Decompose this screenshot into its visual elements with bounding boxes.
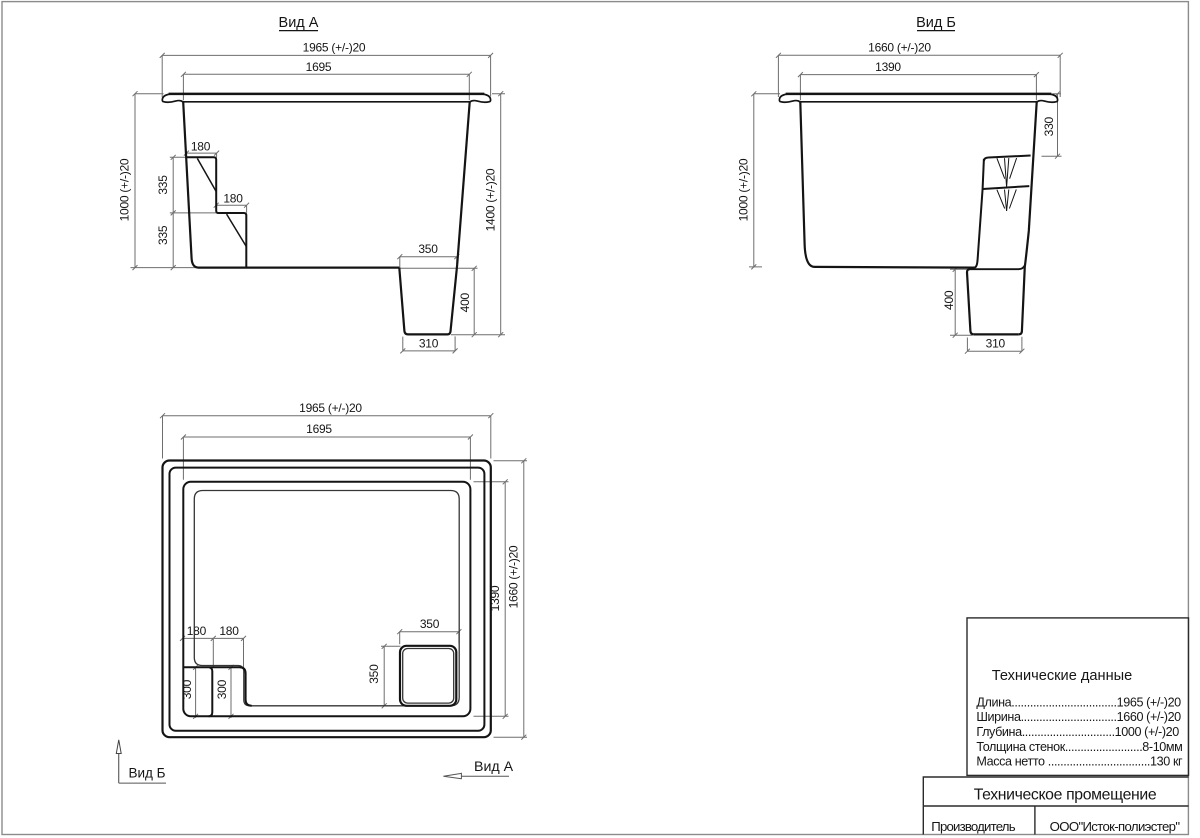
svg-text:Техническое промещение: Техническое промещение bbox=[974, 787, 1157, 804]
svg-text:Вид А: Вид А bbox=[279, 15, 319, 31]
svg-text:400: 400 bbox=[458, 292, 472, 312]
svg-text:1965 (+/-)20: 1965 (+/-)20 bbox=[303, 41, 366, 55]
svg-text:Вид Б: Вид Б bbox=[129, 766, 166, 781]
svg-text:180: 180 bbox=[187, 624, 207, 638]
svg-text:300: 300 bbox=[180, 679, 194, 699]
svg-text:Длина.........................: Длина..................................1… bbox=[976, 695, 1181, 709]
svg-text:180: 180 bbox=[219, 624, 239, 638]
svg-text:1390: 1390 bbox=[875, 60, 901, 74]
svg-text:400: 400 bbox=[942, 290, 956, 310]
svg-text:ООО"Исток-полиэстер": ООО"Исток-полиэстер" bbox=[1050, 819, 1181, 834]
svg-text:350: 350 bbox=[418, 242, 438, 256]
svg-text:335: 335 bbox=[156, 225, 170, 245]
svg-text:1695: 1695 bbox=[306, 422, 332, 436]
svg-text:1000 (+/-)20: 1000 (+/-)20 bbox=[118, 158, 132, 221]
svg-text:1400 (+/-)20: 1400 (+/-)20 bbox=[483, 168, 497, 231]
svg-text:Толщина стенок................: Толщина стенок.........................8… bbox=[976, 740, 1182, 754]
svg-text:350: 350 bbox=[420, 617, 440, 631]
svg-text:Технические данные: Технические данные bbox=[992, 668, 1132, 684]
svg-text:310: 310 bbox=[986, 337, 1006, 351]
svg-text:1660 (+/-)20: 1660 (+/-)20 bbox=[868, 41, 931, 55]
svg-text:Вид Б: Вид Б bbox=[916, 15, 956, 31]
svg-text:1660 (+/-)20: 1660 (+/-)20 bbox=[506, 545, 520, 608]
svg-text:Глубина.......................: Глубина..............................100… bbox=[976, 725, 1179, 739]
svg-text:335: 335 bbox=[156, 175, 170, 195]
svg-text:1965 (+/-)20: 1965 (+/-)20 bbox=[299, 401, 362, 415]
svg-text:180: 180 bbox=[223, 192, 243, 206]
svg-text:Вид А: Вид А bbox=[474, 759, 514, 775]
svg-text:180: 180 bbox=[191, 140, 211, 154]
svg-text:330: 330 bbox=[1042, 116, 1056, 136]
svg-text:350: 350 bbox=[367, 664, 381, 684]
svg-text:1000 (+/-)20: 1000 (+/-)20 bbox=[736, 158, 750, 221]
svg-text:300: 300 bbox=[215, 679, 229, 699]
svg-text:Производитель: Производитель bbox=[931, 819, 1015, 834]
svg-text:Масса нетто ..................: Масса нетто ............................… bbox=[976, 755, 1183, 769]
svg-text:1695: 1695 bbox=[306, 60, 332, 74]
svg-text:Ширина........................: Ширина...............................166… bbox=[976, 710, 1181, 724]
svg-text:310: 310 bbox=[419, 336, 439, 350]
